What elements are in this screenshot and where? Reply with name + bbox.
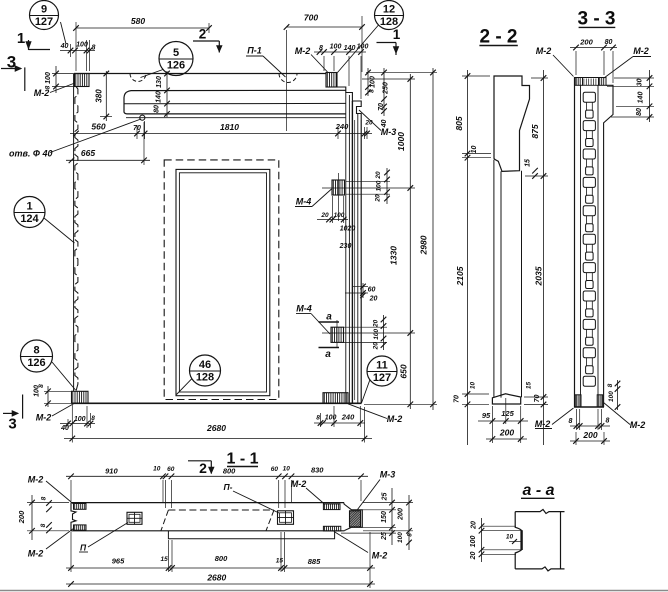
svg-text:910: 910 (105, 467, 118, 476)
svg-text:126: 126 (27, 357, 45, 369)
svg-text:1: 1 (26, 201, 32, 213)
svg-text:a - a: a - a (522, 482, 554, 499)
svg-text:M-2: M-2 (295, 46, 311, 56)
svg-text:10: 10 (283, 466, 291, 473)
svg-text:11: 11 (376, 360, 388, 372)
svg-text:250: 250 (383, 82, 390, 95)
svg-text:8: 8 (45, 85, 52, 89)
svg-text:a: a (325, 349, 331, 360)
svg-text:2: 2 (199, 27, 207, 42)
svg-text:8: 8 (33, 345, 39, 357)
svg-text:1: 1 (17, 30, 25, 47)
svg-text:8: 8 (92, 45, 96, 52)
svg-text:M-4: M-4 (296, 197, 312, 207)
svg-text:8: 8 (91, 415, 95, 422)
svg-text:100: 100 (45, 72, 52, 84)
svg-text:230: 230 (339, 243, 352, 250)
svg-text:100: 100 (330, 44, 342, 51)
svg-text:20: 20 (375, 194, 382, 203)
svg-text:M-2: M-2 (633, 46, 649, 56)
svg-text:1000: 1000 (396, 132, 406, 151)
svg-text:M-2: M-2 (536, 46, 552, 56)
svg-text:5: 5 (173, 47, 179, 59)
svg-text:100: 100 (376, 180, 383, 191)
svg-text:15: 15 (525, 159, 532, 167)
svg-text:130: 130 (156, 76, 163, 88)
svg-text:46: 46 (199, 359, 211, 371)
svg-text:200: 200 (17, 510, 26, 524)
svg-text:П: П (80, 543, 87, 553)
svg-text:150: 150 (381, 511, 388, 523)
svg-text:8: 8 (606, 418, 610, 425)
svg-text:95: 95 (482, 411, 491, 420)
svg-text:60: 60 (271, 466, 279, 473)
svg-text:126: 126 (167, 60, 185, 72)
svg-text:2: 2 (199, 460, 207, 476)
svg-text:140: 140 (344, 45, 356, 52)
svg-text:127: 127 (373, 372, 391, 384)
svg-text:100: 100 (325, 415, 337, 422)
svg-text:1810: 1810 (220, 122, 239, 132)
svg-text:70: 70 (378, 103, 385, 111)
svg-text:M-2: M-2 (28, 549, 44, 559)
svg-text:40: 40 (60, 43, 69, 50)
svg-text:8: 8 (569, 418, 573, 425)
svg-text:30: 30 (637, 79, 644, 87)
svg-text:a: a (326, 312, 332, 323)
svg-text:100: 100 (334, 212, 345, 219)
svg-text:15: 15 (276, 558, 284, 565)
svg-text:M-2: M-2 (28, 475, 44, 485)
svg-text:965: 965 (112, 557, 125, 566)
svg-text:80: 80 (154, 105, 161, 113)
svg-text:380: 380 (95, 89, 104, 103)
svg-text:580: 580 (131, 16, 145, 26)
svg-text:20: 20 (470, 552, 477, 561)
svg-text:885: 885 (308, 557, 321, 566)
svg-text:10: 10 (470, 382, 477, 390)
svg-text:2105: 2105 (455, 266, 465, 286)
svg-text:20: 20 (471, 521, 478, 530)
svg-text:20: 20 (373, 342, 380, 351)
svg-text:15: 15 (160, 556, 168, 563)
svg-text:20: 20 (320, 212, 329, 219)
svg-text:2035: 2035 (534, 266, 544, 286)
svg-text:9: 9 (41, 4, 47, 16)
svg-text:875: 875 (530, 124, 540, 138)
svg-text:100: 100 (357, 44, 369, 51)
svg-text:20: 20 (375, 171, 382, 180)
svg-text:800: 800 (223, 467, 236, 476)
svg-text:128: 128 (196, 372, 214, 384)
svg-text:M-4: M-4 (296, 304, 312, 314)
svg-text:200: 200 (499, 428, 514, 438)
svg-text:15: 15 (526, 382, 533, 390)
svg-text:60: 60 (167, 466, 175, 473)
svg-text:M-2: M-2 (36, 413, 52, 423)
svg-text:8: 8 (40, 523, 47, 527)
svg-text:800: 800 (215, 554, 228, 563)
svg-text:80: 80 (605, 39, 613, 46)
svg-text:M-2: M-2 (372, 551, 388, 561)
svg-text:40: 40 (381, 120, 388, 129)
svg-text:25: 25 (382, 493, 389, 502)
svg-text:3: 3 (8, 416, 16, 433)
svg-text:8: 8 (319, 45, 323, 52)
svg-text:20: 20 (369, 296, 378, 303)
svg-text:10: 10 (153, 466, 161, 473)
svg-text:1330: 1330 (389, 246, 399, 265)
svg-text:100: 100 (608, 391, 615, 402)
svg-text:830: 830 (311, 466, 324, 475)
svg-text:2980: 2980 (419, 235, 429, 255)
svg-text:8: 8 (408, 533, 414, 537)
svg-text:8: 8 (41, 496, 48, 500)
svg-text:700: 700 (304, 13, 318, 23)
svg-text:100: 100 (370, 76, 377, 88)
svg-text:1: 1 (393, 27, 401, 42)
svg-text:127: 127 (35, 16, 53, 28)
svg-text:2680: 2680 (206, 573, 226, 583)
svg-text:100: 100 (470, 536, 477, 548)
svg-text:650: 650 (399, 364, 409, 378)
svg-text:805: 805 (454, 116, 464, 130)
svg-text:100: 100 (373, 328, 380, 339)
svg-text:8: 8 (38, 384, 45, 388)
svg-text:12: 12 (383, 4, 395, 16)
svg-text:M-2: M-2 (630, 420, 646, 430)
svg-text:П-1: П-1 (247, 46, 261, 56)
svg-text:140: 140 (638, 92, 645, 104)
svg-text:200: 200 (579, 38, 593, 47)
svg-text:125: 125 (501, 409, 514, 418)
svg-text:20: 20 (364, 120, 373, 127)
svg-text:70: 70 (534, 395, 541, 403)
svg-text:100: 100 (397, 532, 404, 543)
svg-text:665: 665 (81, 148, 95, 158)
svg-text:2 - 2: 2 - 2 (479, 27, 517, 48)
svg-text:3 - 3: 3 - 3 (577, 8, 615, 29)
svg-text:отв. Ф 40: отв. Ф 40 (9, 149, 52, 159)
svg-text:100: 100 (74, 416, 86, 423)
svg-text:8: 8 (316, 415, 320, 422)
svg-text:8: 8 (369, 89, 376, 93)
svg-text:П-: П- (224, 482, 233, 492)
svg-text:2680: 2680 (206, 423, 226, 433)
svg-text:200: 200 (582, 430, 597, 440)
svg-text:8: 8 (607, 383, 614, 387)
svg-text:1 - 1: 1 - 1 (226, 451, 258, 468)
svg-text:560: 560 (91, 122, 105, 132)
svg-text:60: 60 (368, 287, 376, 294)
svg-text:M-2: M-2 (291, 479, 307, 489)
svg-text:124: 124 (20, 213, 39, 225)
svg-text:200: 200 (398, 508, 405, 521)
svg-text:70: 70 (454, 395, 461, 403)
svg-text:240: 240 (335, 122, 349, 131)
svg-text:M-3: M-3 (381, 127, 397, 137)
svg-text:80: 80 (636, 108, 643, 116)
svg-text:10: 10 (506, 534, 514, 541)
svg-text:140: 140 (156, 91, 163, 103)
svg-text:20: 20 (373, 319, 380, 328)
svg-text:M-3: M-3 (380, 470, 396, 480)
svg-text:M-2: M-2 (535, 419, 551, 429)
svg-text:240: 240 (341, 413, 355, 422)
svg-text:M-2: M-2 (387, 414, 403, 424)
svg-text:10: 10 (471, 146, 478, 154)
svg-text:1020: 1020 (340, 226, 356, 233)
